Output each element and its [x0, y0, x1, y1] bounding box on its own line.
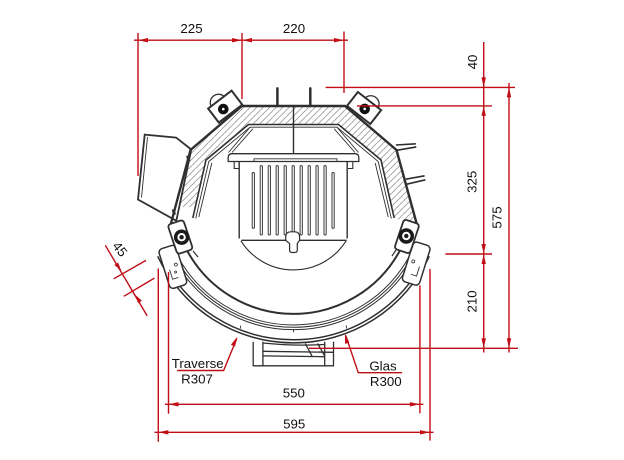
- svg-text:R307: R307: [181, 371, 213, 386]
- svg-text:325: 325: [465, 171, 480, 193]
- svg-text:575: 575: [490, 206, 505, 228]
- svg-text:225: 225: [180, 21, 202, 36]
- svg-text:R300: R300: [370, 374, 402, 389]
- svg-text:220: 220: [283, 21, 305, 36]
- svg-text:Glas: Glas: [369, 358, 397, 373]
- svg-text:595: 595: [283, 416, 305, 431]
- svg-text:40: 40: [465, 55, 480, 70]
- svg-text:210: 210: [465, 290, 480, 312]
- svg-text:Traverse: Traverse: [172, 356, 224, 371]
- svg-text:550: 550: [283, 386, 305, 401]
